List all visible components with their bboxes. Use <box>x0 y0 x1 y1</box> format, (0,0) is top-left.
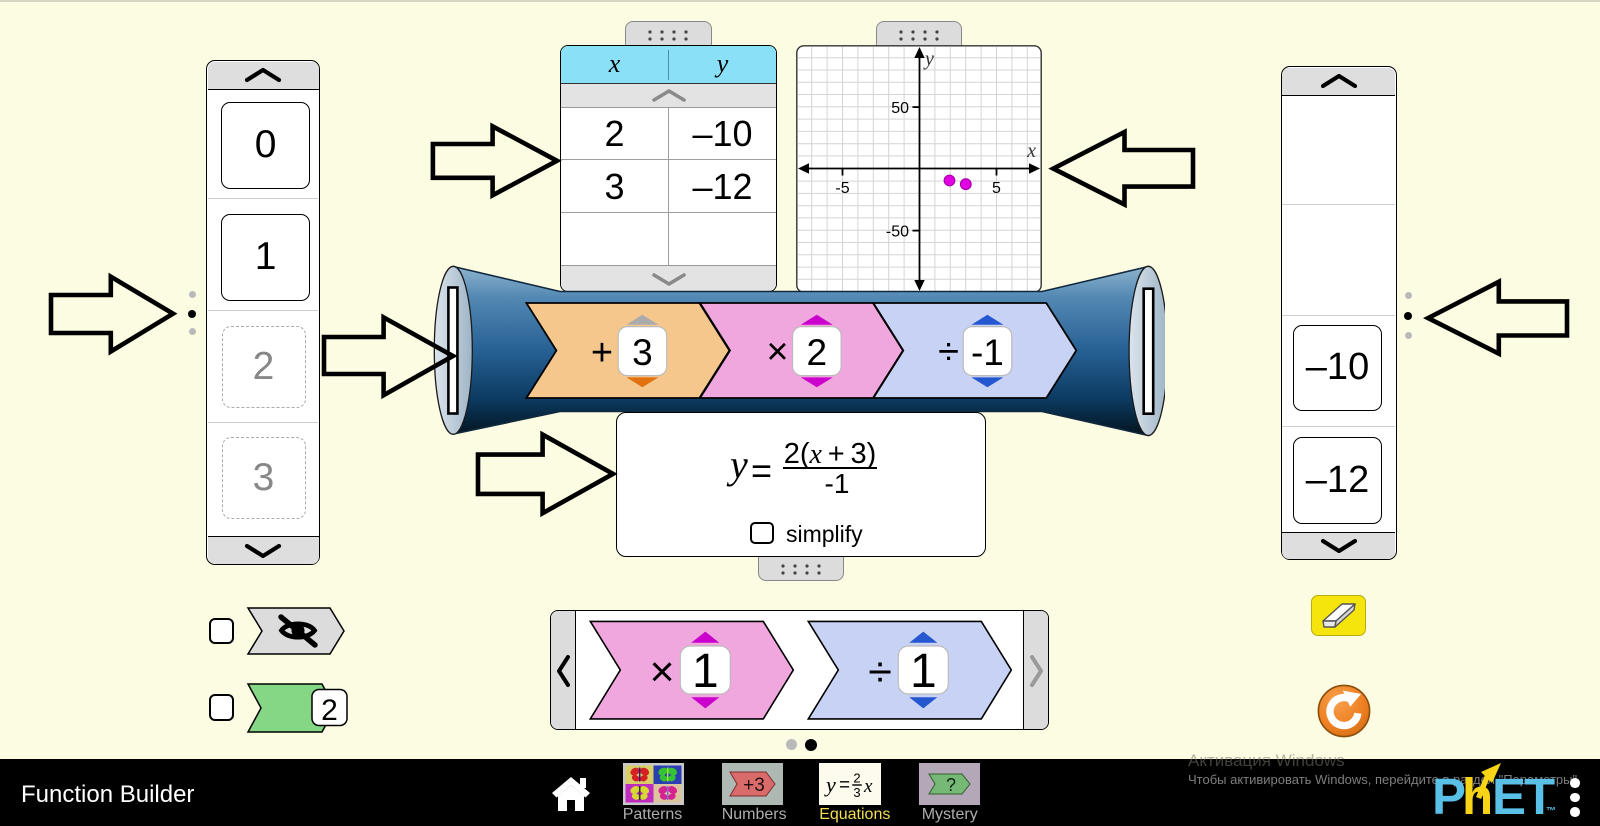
svg-text:÷: ÷ <box>868 648 892 696</box>
svg-text:+: + <box>591 332 613 374</box>
svg-text:×: × <box>649 648 674 696</box>
svg-text:+3: +3 <box>743 775 765 796</box>
svg-text:=: = <box>839 775 850 796</box>
svg-text:2: 2 <box>854 770 861 785</box>
svg-text:3: 3 <box>854 785 861 800</box>
svg-text:y: y <box>923 48 934 70</box>
svg-text:y: y <box>824 772 836 797</box>
svg-text:?: ? <box>946 775 956 795</box>
svg-text:5: 5 <box>992 180 1001 197</box>
svg-text:-5: -5 <box>835 180 849 197</box>
svg-text:÷: ÷ <box>938 331 959 373</box>
svg-text:x: x <box>863 776 873 797</box>
svg-text:2: 2 <box>807 332 828 373</box>
svg-text:-1: -1 <box>971 332 1004 373</box>
svg-text:×: × <box>766 331 788 373</box>
svg-text:x: x <box>1026 140 1036 162</box>
svg-text:1: 1 <box>910 645 937 698</box>
svg-text:50: 50 <box>891 100 909 117</box>
svg-text:1: 1 <box>692 645 719 698</box>
svg-text:-50: -50 <box>885 223 908 240</box>
svg-text:3: 3 <box>632 332 653 373</box>
svg-text:2: 2 <box>321 694 338 727</box>
